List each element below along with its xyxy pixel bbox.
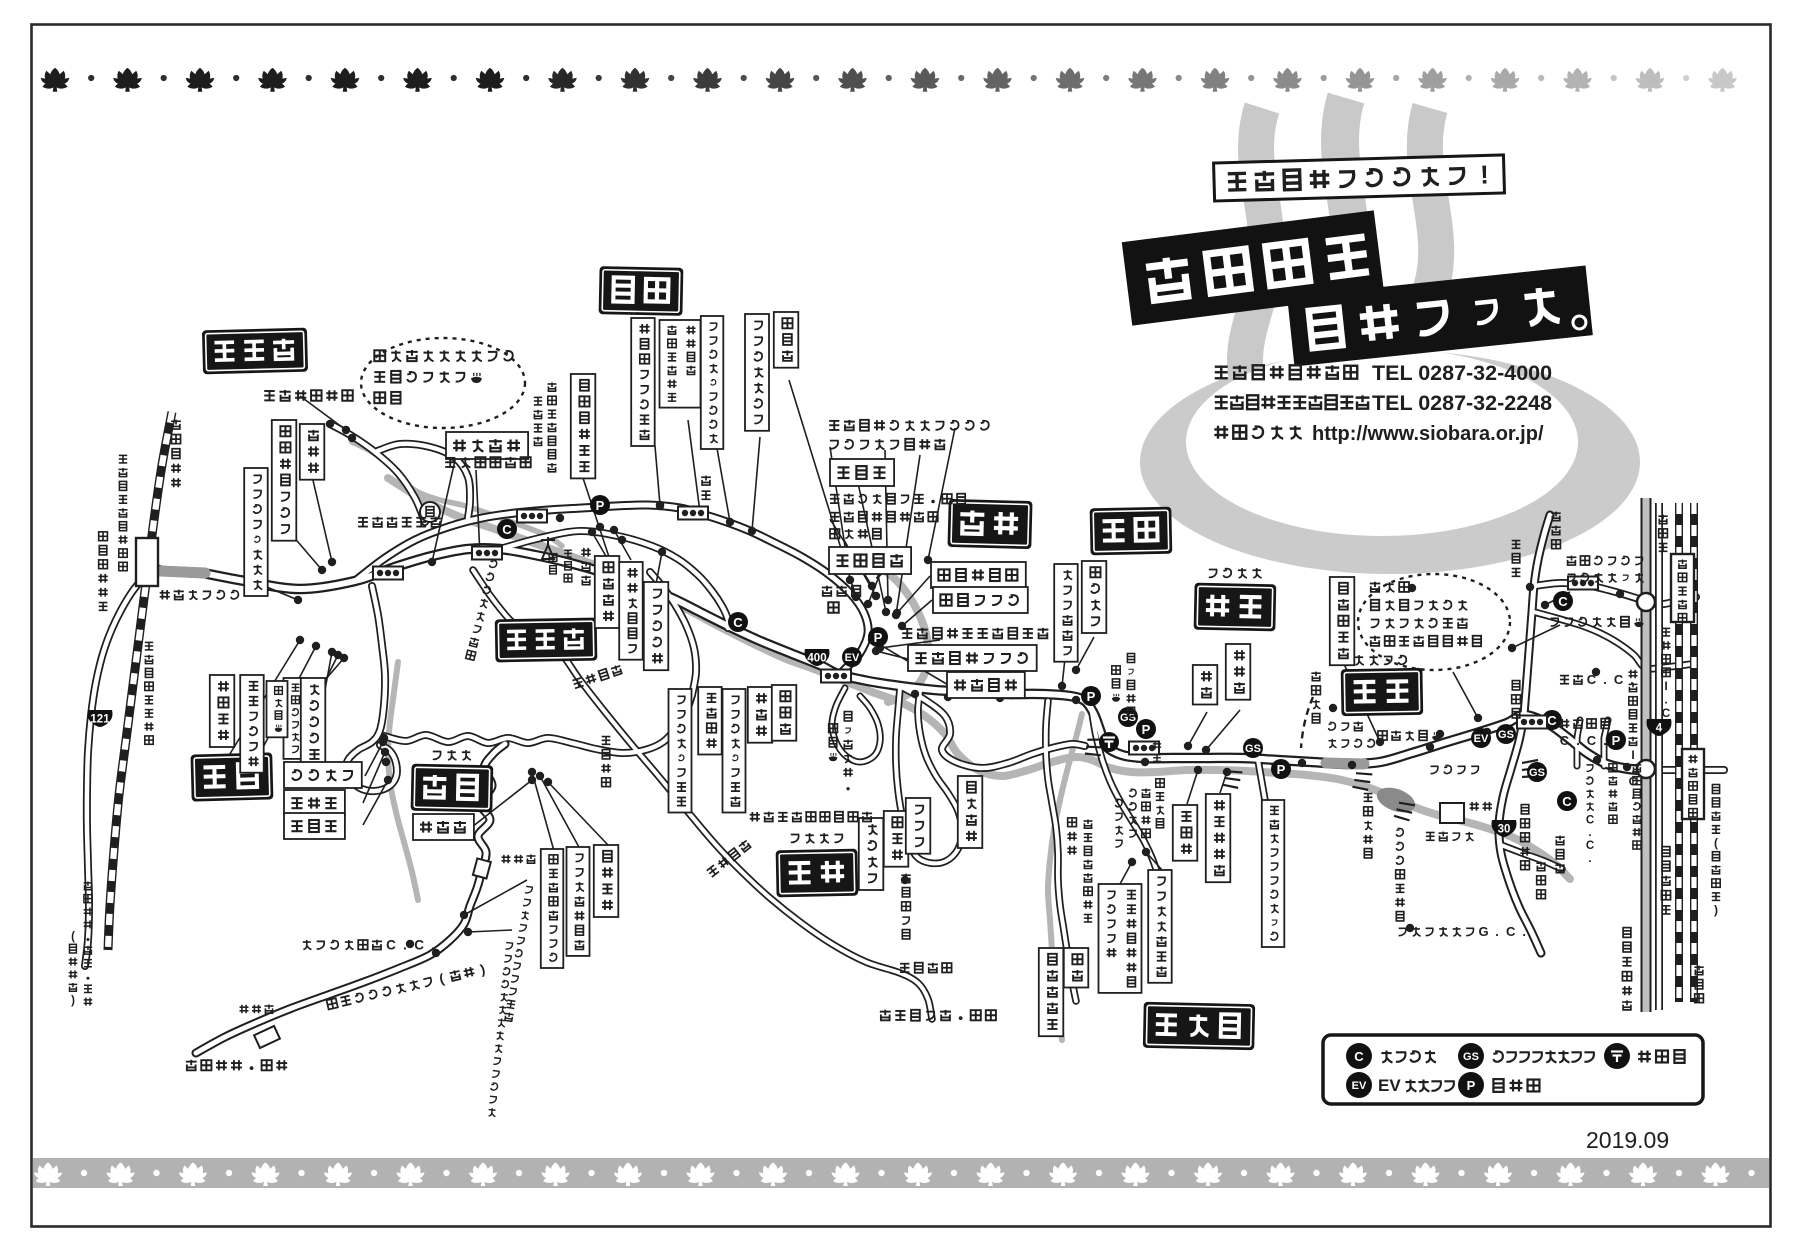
svg-text:GS: GS xyxy=(1529,767,1545,779)
svg-text:C: C xyxy=(1587,733,1597,748)
svg-text:P: P xyxy=(874,630,883,645)
svg-text:http://www.siobara.or.jp/: http://www.siobara.or.jp/ xyxy=(1312,423,1544,445)
svg-text:I: I xyxy=(1631,748,1634,762)
svg-text:.: . xyxy=(1588,853,1591,865)
svg-text:C: C xyxy=(1354,1049,1364,1064)
svg-text:!: ! xyxy=(1480,159,1490,189)
svg-text:P: P xyxy=(1467,1078,1476,1093)
svg-text:.: . xyxy=(1630,672,1634,687)
svg-text:2019.09: 2019.09 xyxy=(1586,1127,1669,1153)
svg-text:121: 121 xyxy=(90,714,110,726)
svg-text:C: C xyxy=(1587,672,1597,687)
svg-text:C: C xyxy=(414,938,424,953)
svg-text:P: P xyxy=(596,498,605,513)
svg-text:C: C xyxy=(1506,924,1516,939)
svg-text:GS: GS xyxy=(1245,743,1261,755)
svg-text:TEL 0287-32-2248: TEL 0287-32-2248 xyxy=(1372,391,1552,415)
svg-text:P: P xyxy=(1277,762,1286,777)
svg-text:TEL 0287-32-4000: TEL 0287-32-4000 xyxy=(1372,361,1552,385)
svg-text:.: . xyxy=(1495,924,1499,939)
svg-text:C: C xyxy=(1547,713,1557,728)
svg-text:): ) xyxy=(71,995,75,1007)
svg-text:C: C xyxy=(1558,594,1568,609)
svg-text:.: . xyxy=(1522,924,1526,939)
svg-text:.: . xyxy=(1588,827,1591,839)
svg-text:30: 30 xyxy=(1498,824,1511,836)
svg-text:4: 4 xyxy=(1656,723,1663,735)
svg-text:(: ( xyxy=(1714,836,1718,850)
svg-text:.: . xyxy=(1603,672,1607,687)
svg-text:G: G xyxy=(1479,924,1489,939)
svg-text:.: . xyxy=(1603,733,1607,748)
svg-text:C: C xyxy=(1562,794,1572,809)
svg-text:P: P xyxy=(1612,733,1621,748)
svg-text:GS: GS xyxy=(1463,1051,1479,1063)
svg-text:EV: EV xyxy=(1378,1076,1401,1095)
svg-text:.: . xyxy=(1664,692,1667,706)
svg-text:EV: EV xyxy=(1352,1080,1367,1092)
svg-text:EV: EV xyxy=(1474,733,1489,745)
svg-text:GS: GS xyxy=(1498,729,1514,741)
svg-text:.: . xyxy=(403,938,407,953)
svg-text:C: C xyxy=(1560,733,1570,748)
svg-text:P: P xyxy=(1142,722,1151,737)
svg-text:C: C xyxy=(1662,706,1671,720)
svg-text:C: C xyxy=(733,615,743,630)
svg-text:.: . xyxy=(431,938,435,953)
svg-text:.: . xyxy=(1576,733,1580,748)
svg-text:.: . xyxy=(1664,719,1667,733)
svg-text:P: P xyxy=(1087,689,1096,704)
svg-text:C: C xyxy=(502,522,512,537)
svg-text:EV: EV xyxy=(845,652,860,664)
svg-text:(: ( xyxy=(71,931,75,943)
svg-text:C: C xyxy=(386,938,396,953)
svg-text:C: C xyxy=(1586,840,1594,852)
svg-text:I: I xyxy=(1664,679,1667,693)
svg-text:C: C xyxy=(1614,672,1624,687)
svg-text:): ) xyxy=(1714,903,1718,917)
svg-text:C: C xyxy=(1586,814,1594,826)
svg-text:400: 400 xyxy=(807,653,826,665)
